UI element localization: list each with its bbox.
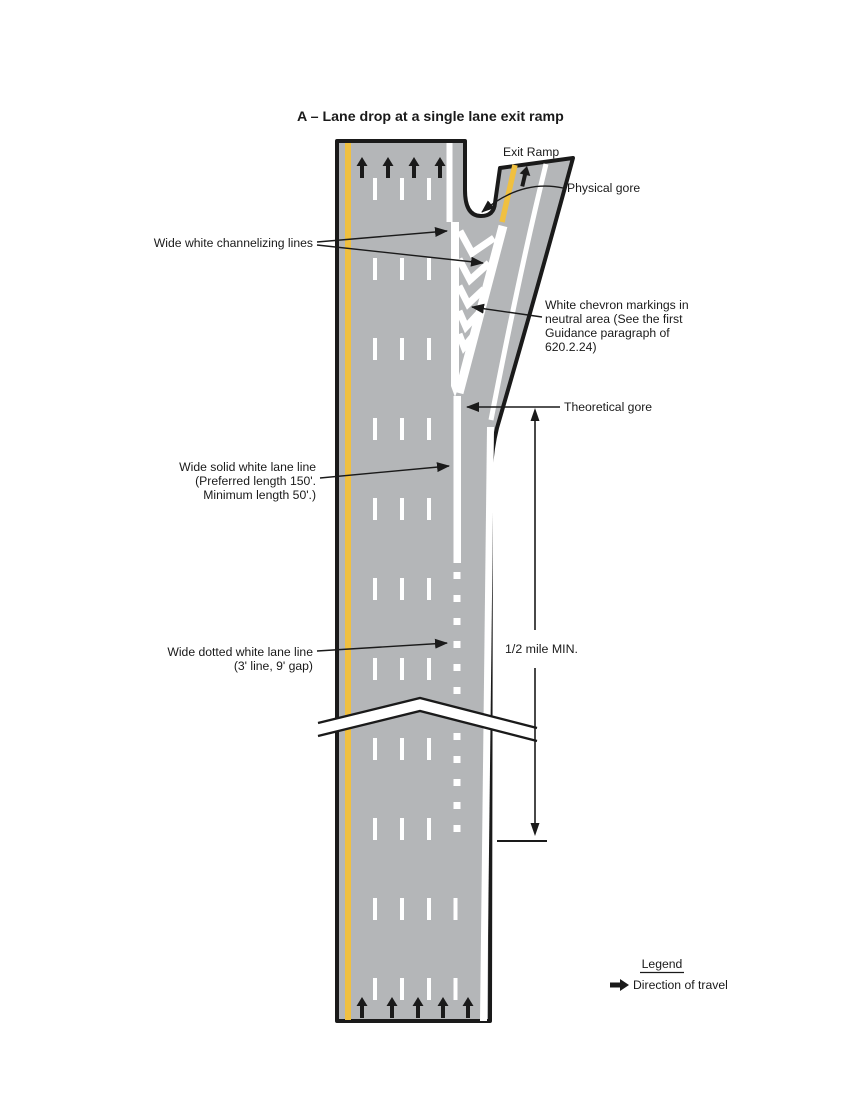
- lane-drop-figure: A – Lane drop at a single lane exit ramp: [0, 0, 850, 1100]
- solid-line-label-line2: (Preferred length 150'.: [195, 474, 316, 488]
- white-edge-line-upper-right: [447, 143, 453, 222]
- chevron-label-line4: 620.2.24): [545, 340, 597, 354]
- yellow-edge-line: [345, 143, 351, 1020]
- chevron-label: White chevron markings in neutral area (…: [545, 298, 689, 354]
- half-mile-label: 1/2 mile MIN.: [505, 642, 578, 656]
- physical-gore-label: Physical gore: [567, 181, 640, 195]
- dimension-arrowhead-down: [531, 823, 540, 836]
- chevron-label-line1: White chevron markings in: [545, 298, 689, 312]
- legend-direction-label: Direction of travel: [633, 978, 728, 992]
- solid-line-label-line1: Wide solid white lane line: [179, 460, 316, 474]
- dotted-line-label-line2: (3' line, 9' gap): [234, 659, 313, 673]
- wide-solid-white-lane-line: [454, 396, 462, 563]
- dotted-line-label: Wide dotted white lane line (3' line, 9'…: [167, 645, 313, 673]
- chevron-label-line3: Guidance paragraph of: [545, 326, 670, 340]
- left-channelizing-line: [451, 222, 459, 397]
- dimension-arrowhead-up: [531, 408, 540, 421]
- channelizing-label: Wide white channelizing lines: [154, 236, 313, 250]
- solid-line-label-line3: Minimum length 50'.): [203, 488, 316, 502]
- dotted-line-label-line1: Wide dotted white lane line: [167, 645, 313, 659]
- theoretical-gore-label: Theoretical gore: [564, 400, 652, 414]
- lane-drop-diagram: A – Lane drop at a single lane exit ramp: [0, 0, 850, 1100]
- chevron-label-line2: neutral area (See the first: [545, 312, 683, 326]
- exit-ramp-label: Exit Ramp: [503, 145, 559, 159]
- direction-of-travel-icon: [610, 979, 629, 991]
- solid-line-label: Wide solid white lane line (Preferred le…: [179, 460, 316, 502]
- figure-title: A – Lane drop at a single lane exit ramp: [297, 109, 564, 125]
- legend: Legend Direction of travel: [610, 957, 728, 992]
- legend-title: Legend: [642, 957, 683, 971]
- half-mile-dimension: [497, 408, 547, 841]
